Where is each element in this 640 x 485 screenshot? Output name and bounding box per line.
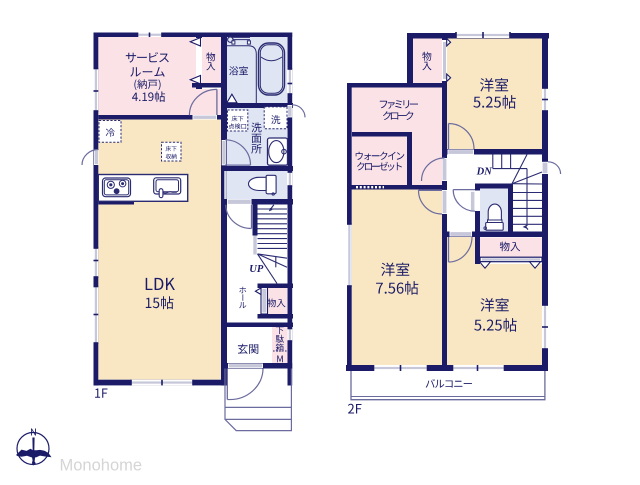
- svg-text:Monohome: Monohome: [60, 457, 143, 475]
- svg-text:UP: UP: [249, 264, 264, 275]
- svg-text:DN: DN: [476, 167, 493, 178]
